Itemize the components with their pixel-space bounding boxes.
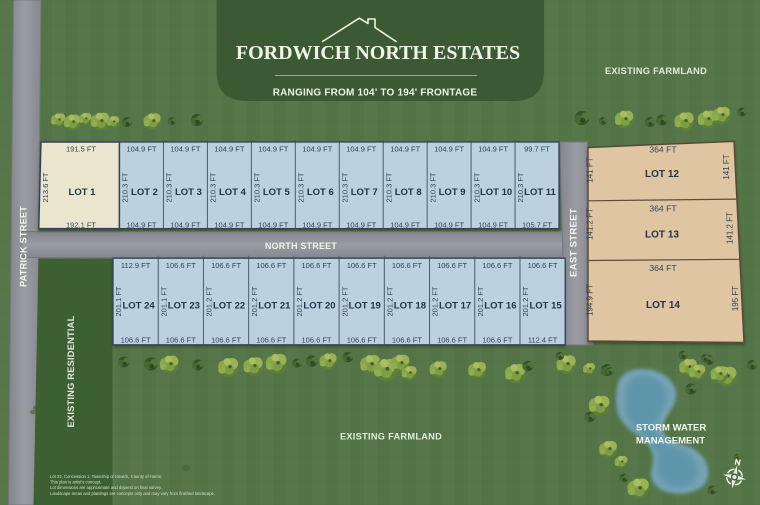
svg-text:141 FT: 141 FT xyxy=(722,154,731,179)
svg-text:STORM WATER: STORM WATER xyxy=(636,423,707,434)
svg-text:141.2 FT: 141.2 FT xyxy=(726,212,735,244)
svg-text:106.6 FT: 106.6 FT xyxy=(437,335,467,344)
svg-text:192.1 FT: 192.1 FT xyxy=(66,221,96,230)
svg-text:MANAGEMENT: MANAGEMENT xyxy=(636,436,705,447)
svg-text:104.9 FT: 104.9 FT xyxy=(126,145,156,154)
svg-text:LOT 8: LOT 8 xyxy=(395,187,422,198)
svg-text:LOT 22: LOT 22 xyxy=(213,301,245,312)
svg-text:LOT 3: LOT 3 xyxy=(175,187,202,198)
svg-text:112.9 FT: 112.9 FT xyxy=(121,261,151,270)
svg-text:104.9 FT: 104.9 FT xyxy=(302,145,332,154)
svg-text:104.9 FT: 104.9 FT xyxy=(214,145,244,154)
svg-text:106.6 FT: 106.6 FT xyxy=(482,335,512,344)
svg-text:191.5 FT: 191.5 FT xyxy=(66,145,96,154)
svg-text:Lot 22, Concession 1, Township: Lot 22, Concession 1, Township of Howick… xyxy=(50,474,162,479)
svg-text:104.9 FT: 104.9 FT xyxy=(390,145,420,154)
svg-text:LOT 9: LOT 9 xyxy=(439,187,466,198)
svg-text:106.6 FT: 106.6 FT xyxy=(166,335,196,344)
svg-text:FORDWICH NORTH ESTATES: FORDWICH NORTH ESTATES xyxy=(236,42,520,64)
svg-text:LOT 4: LOT 4 xyxy=(219,187,247,198)
svg-text:LOT 5: LOT 5 xyxy=(263,187,291,198)
svg-text:LOT 14: LOT 14 xyxy=(646,300,680,311)
svg-text:RANGING FROM 104' TO 194' FRO: RANGING FROM 104' TO 194' FRONTAGE xyxy=(273,88,478,99)
svg-text:141 FT: 141 FT xyxy=(586,157,595,182)
svg-text:LOT 11: LOT 11 xyxy=(524,187,556,198)
svg-text:112.4 FT: 112.4 FT xyxy=(528,335,558,344)
svg-text:106.6 FT: 106.6 FT xyxy=(437,261,467,270)
svg-text:LOT 20: LOT 20 xyxy=(303,301,335,312)
svg-text:LOT 19: LOT 19 xyxy=(349,301,381,312)
svg-text:106.6 FT: 106.6 FT xyxy=(528,261,558,270)
svg-text:NORTH STREET: NORTH STREET xyxy=(265,241,337,251)
svg-text:This plan is artist's concept.: This plan is artist's concept. xyxy=(50,480,101,485)
svg-text:210.3 FT: 210.3 FT xyxy=(428,172,437,202)
svg-text:210.3 FT: 210.3 FT xyxy=(384,172,393,202)
svg-text:LOT 13: LOT 13 xyxy=(645,230,679,241)
svg-text:106.6 FT: 106.6 FT xyxy=(301,335,331,344)
svg-text:106.6 FT: 106.6 FT xyxy=(347,261,377,270)
svg-text:106.6 FT: 106.6 FT xyxy=(256,261,286,270)
svg-text:364 FT: 364 FT xyxy=(649,263,677,273)
svg-text:LOT 2: LOT 2 xyxy=(131,187,158,198)
svg-text:210.3 FT: 210.3 FT xyxy=(121,172,130,202)
svg-text:EAST STREET: EAST STREET xyxy=(569,208,580,277)
svg-text:LOT 10: LOT 10 xyxy=(480,187,512,198)
svg-text:106.6 FT: 106.6 FT xyxy=(392,335,422,344)
svg-text:LOT 7: LOT 7 xyxy=(351,187,378,198)
svg-text:141.2 FT: 141.2 FT xyxy=(586,208,595,240)
svg-text:106.6 FT: 106.6 FT xyxy=(211,335,241,344)
svg-text:106.6 FT: 106.6 FT xyxy=(121,335,151,344)
svg-text:EXISTING FARMLAND: EXISTING FARMLAND xyxy=(605,66,707,76)
svg-text:104.9 FT: 104.9 FT xyxy=(170,145,200,154)
svg-text:106.6 FT: 106.6 FT xyxy=(347,335,377,344)
svg-text:213.6 FT: 213.6 FT xyxy=(41,172,50,202)
svg-text:Landscape areas and plantings: Landscape areas and plantings are concep… xyxy=(50,491,215,496)
svg-text:LOT 18: LOT 18 xyxy=(394,301,426,312)
svg-text:210.3 FT: 210.3 FT xyxy=(209,172,218,202)
svg-text:106.6 FT: 106.6 FT xyxy=(211,261,241,270)
svg-text:LOT 23: LOT 23 xyxy=(168,301,200,312)
svg-text:104.9 FT: 104.9 FT xyxy=(434,145,464,154)
svg-text:106.6 FT: 106.6 FT xyxy=(301,261,331,270)
svg-text:364 FT: 364 FT xyxy=(649,204,677,214)
svg-text:106.6 FT: 106.6 FT xyxy=(392,261,422,270)
svg-text:104.9 FT: 104.9 FT xyxy=(478,145,508,154)
svg-text:106.6 FT: 106.6 FT xyxy=(166,261,196,270)
svg-text:LOT 12: LOT 12 xyxy=(645,169,679,180)
svg-text:210.3 FT: 210.3 FT xyxy=(165,172,174,202)
svg-text:LOT 17: LOT 17 xyxy=(439,301,471,312)
svg-text:364 FT: 364 FT xyxy=(649,145,677,155)
svg-text:210.3 FT: 210.3 FT xyxy=(253,172,262,202)
svg-text:EXISTING RESIDENTIAL: EXISTING RESIDENTIAL xyxy=(66,315,76,427)
svg-text:104.9 FT: 104.9 FT xyxy=(346,145,376,154)
svg-text:195 FT: 195 FT xyxy=(731,286,740,311)
svg-text:210.3 FT: 210.3 FT xyxy=(297,172,306,202)
svg-text:PATRICK STREET: PATRICK STREET xyxy=(19,206,29,287)
svg-text:194.9 FT: 194.9 FT xyxy=(586,284,595,316)
svg-text:LOT 1: LOT 1 xyxy=(69,187,97,198)
svg-text:LOT 21: LOT 21 xyxy=(258,301,291,312)
svg-text:106.6 FT: 106.6 FT xyxy=(256,335,286,344)
svg-text:210.3 FT: 210.3 FT xyxy=(340,172,349,202)
svg-text:106.6 FT: 106.6 FT xyxy=(482,261,512,270)
svg-text:LOT 16: LOT 16 xyxy=(484,301,516,312)
svg-text:104.9 FT: 104.9 FT xyxy=(258,145,288,154)
svg-text:LOT 15: LOT 15 xyxy=(529,301,562,312)
svg-text:Lot dimensions are approximate: Lot dimensions are approximate and depen… xyxy=(50,485,162,490)
svg-text:99.7 FT: 99.7 FT xyxy=(524,145,550,154)
svg-text:LOT 24: LOT 24 xyxy=(122,301,155,312)
svg-text:LOT 6: LOT 6 xyxy=(307,187,334,198)
svg-text:EXISTING FARMLAND: EXISTING FARMLAND xyxy=(340,432,442,442)
